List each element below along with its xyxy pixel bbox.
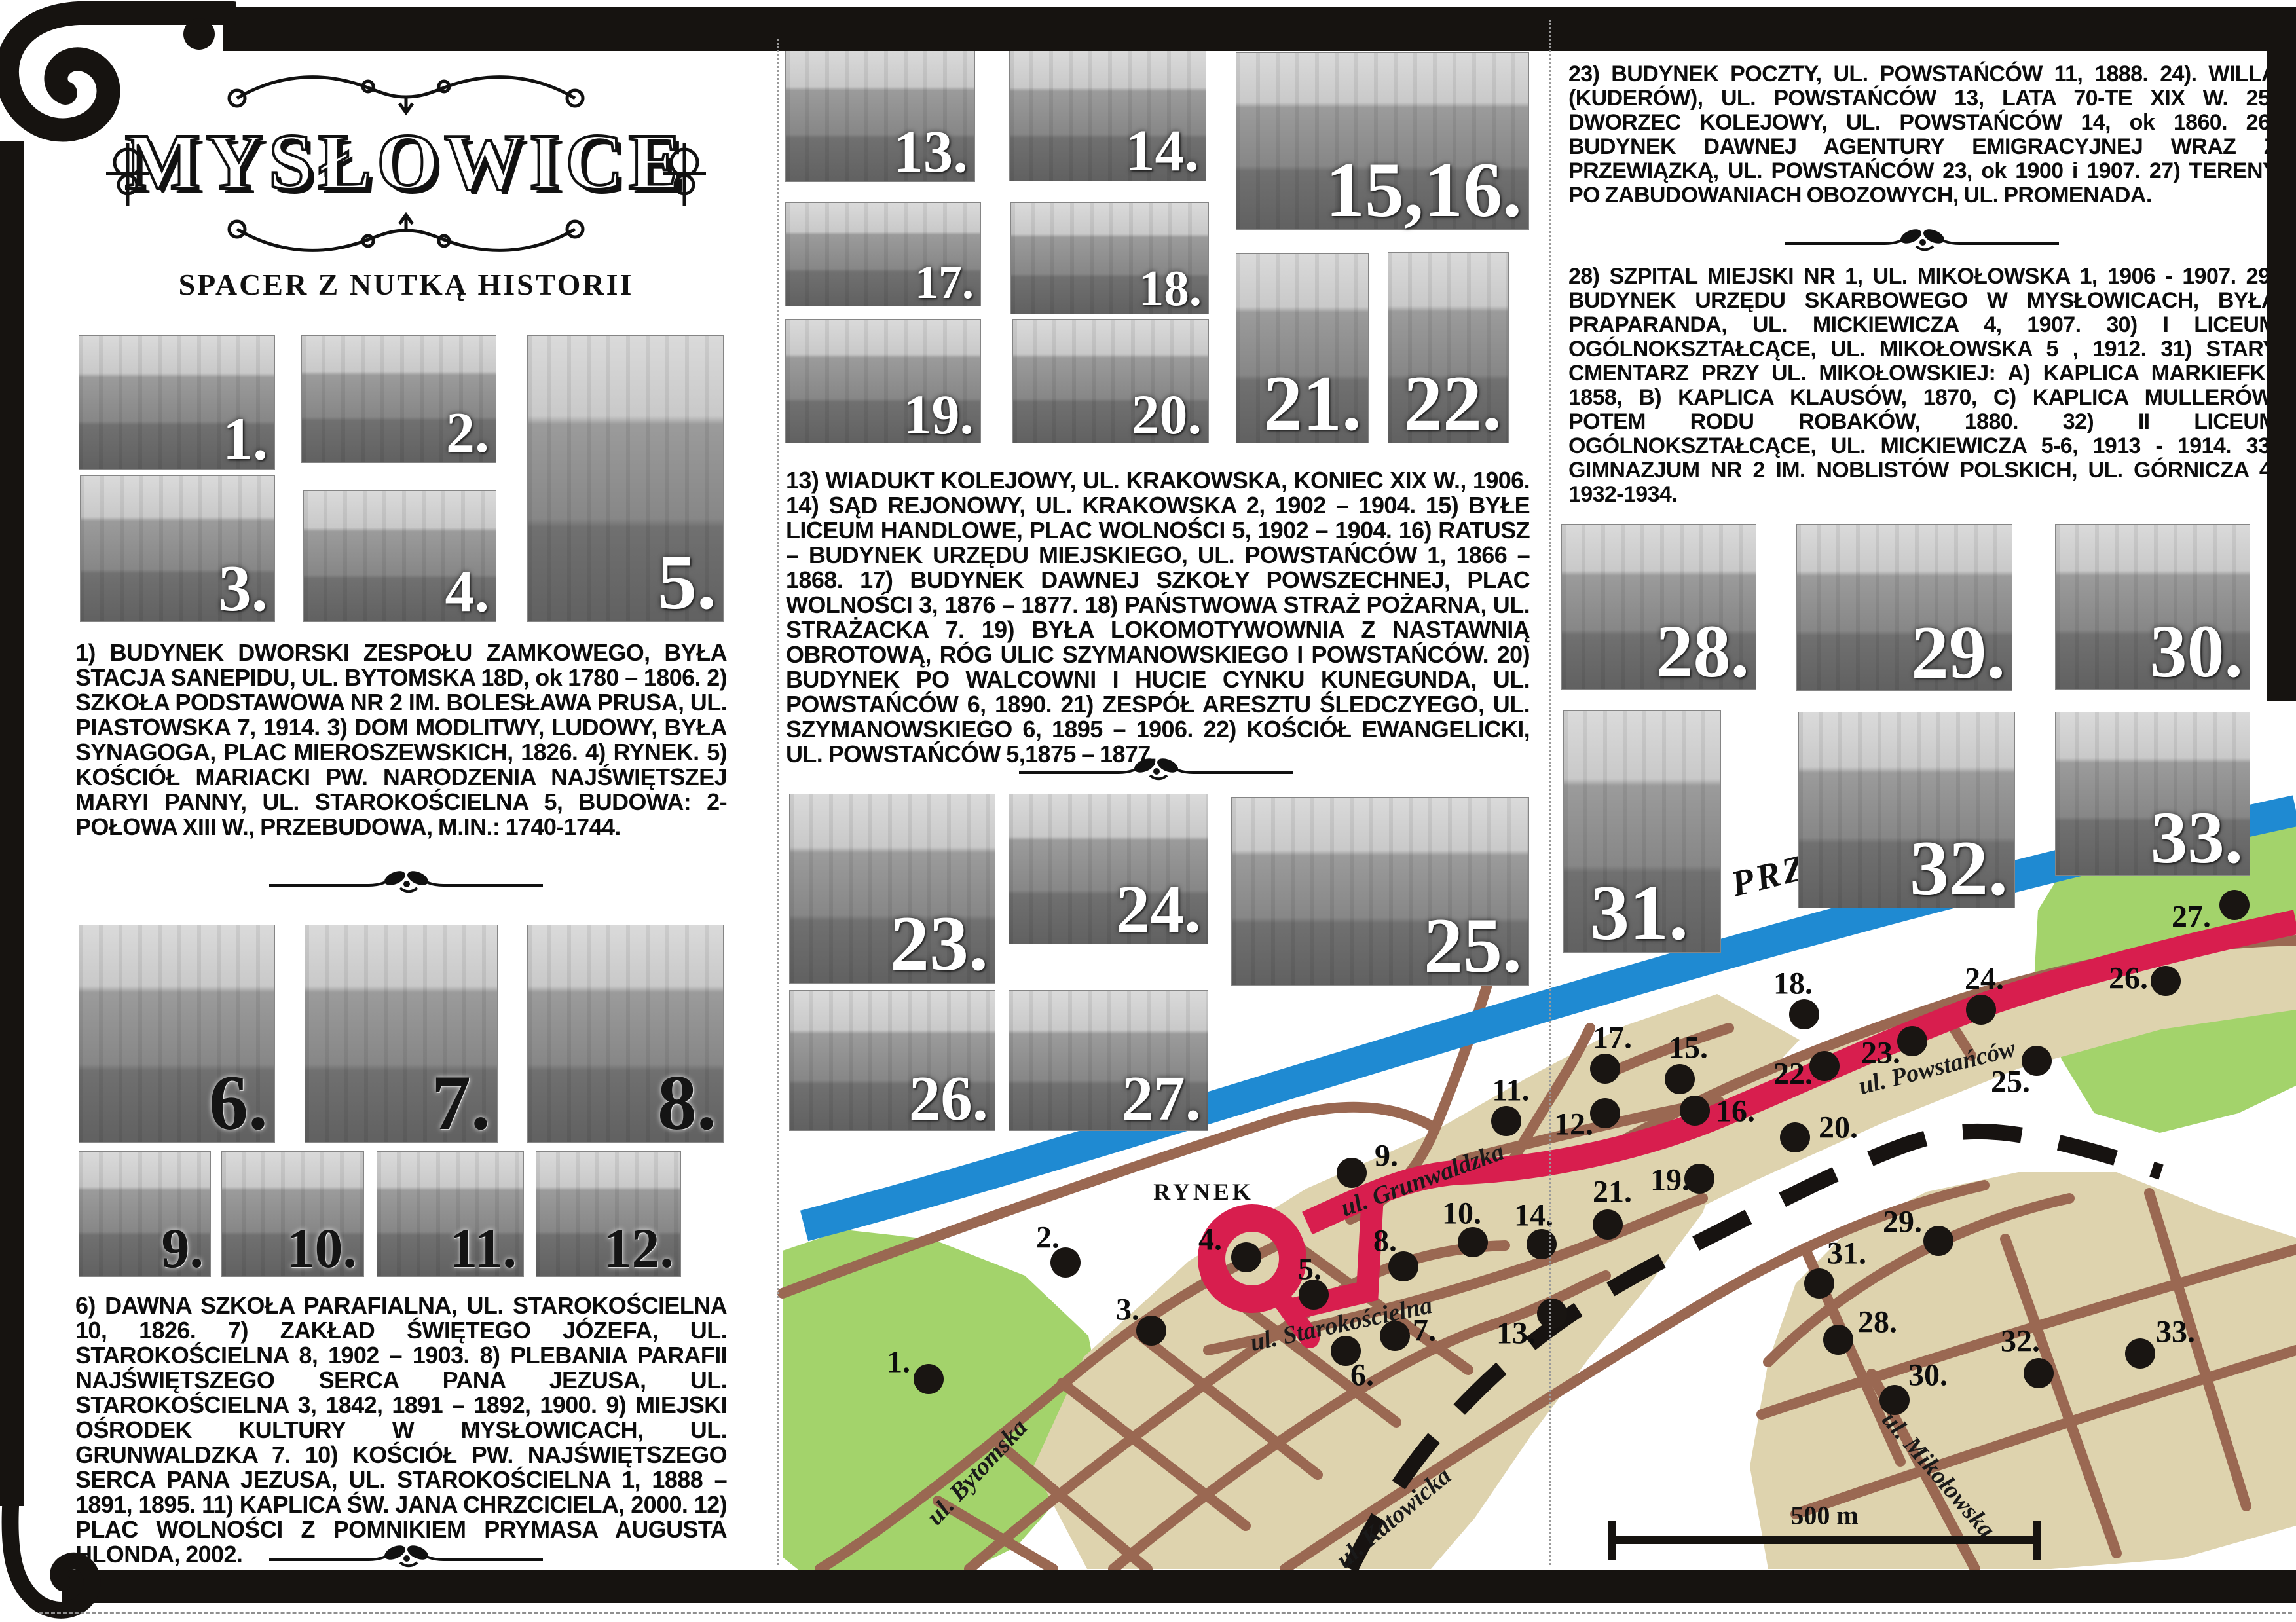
- photo-number: 14.: [1126, 122, 1200, 181]
- photo-number: 13.: [893, 122, 968, 181]
- photo-number: 26.: [909, 1067, 988, 1130]
- map-point-dot-29: [1923, 1226, 1953, 1256]
- map-point-label-16: 16.: [1716, 1094, 1755, 1130]
- photo-number: 11.: [449, 1220, 517, 1276]
- photo-number: 8.: [657, 1063, 716, 1142]
- photo-32_: 32.: [1798, 712, 2015, 908]
- map-point-label-7: 7.: [1413, 1313, 1436, 1349]
- title-ornament-top: [223, 60, 589, 117]
- photo-8_: 8.: [527, 925, 724, 1143]
- map-point-dot-17: [1590, 1054, 1620, 1084]
- map-point-dot-27: [2219, 890, 2250, 920]
- divider-left-1: [265, 866, 547, 896]
- photo-25_: 25.: [1231, 797, 1529, 986]
- map-point-label-21: 21.: [1593, 1174, 1632, 1210]
- photo-28_: 28.: [1561, 524, 1756, 690]
- map-point-dot-30: [1879, 1385, 1910, 1415]
- frame-top-bar: [223, 7, 2296, 51]
- map-point-dot-33: [2125, 1338, 2155, 1369]
- photo-number: 28.: [1656, 614, 1750, 689]
- map-point-label-26: 26.: [2109, 961, 2148, 997]
- map-point-dot-1: [914, 1364, 944, 1394]
- photo-22_: 22.: [1388, 252, 1509, 443]
- photo-29_: 29.: [1796, 524, 2012, 691]
- divider-right: [1781, 224, 2063, 254]
- map-point-dot-28: [1823, 1325, 1853, 1355]
- map-point-dot-14: [1527, 1229, 1557, 1259]
- map-point-label-30: 30.: [1908, 1357, 1948, 1393]
- map-point-dot-11: [1491, 1106, 1521, 1136]
- map-point-label-27: 27.: [2172, 899, 2211, 935]
- corner-scroll-bottom-left: [0, 1500, 111, 1622]
- map-point-label-25: 25.: [1991, 1064, 2030, 1100]
- map-point-label-12: 12.: [1554, 1107, 1593, 1143]
- photo-19_: 19.: [785, 319, 981, 443]
- photo-23_: 23.: [789, 794, 995, 984]
- photo-31_: 31.: [1563, 710, 1721, 953]
- photo-number: 30.: [2150, 614, 2244, 689]
- photo-15_16_: 15,16.: [1236, 52, 1529, 230]
- map-point-label-1: 1.: [887, 1344, 910, 1380]
- park-left: [783, 1230, 1102, 1590]
- map-point-dot-32: [2024, 1358, 2054, 1388]
- title-ornament-bottom: [223, 211, 589, 267]
- photo-number: 6.: [209, 1063, 268, 1142]
- scale-label: 500 m: [1790, 1500, 1858, 1531]
- legend-13-22: 13) WIADUKT KOLEJOWY, UL. KRAKOWSKA, KON…: [786, 468, 1530, 767]
- photo-number: 10.: [287, 1220, 358, 1276]
- map-point-dot-4: [1231, 1242, 1261, 1272]
- frame-bottom-bar: [62, 1570, 2296, 1603]
- column-separator-right: [1549, 20, 1551, 1565]
- photo-2_: 2.: [301, 335, 496, 463]
- fold-line-bottom: [39, 1612, 2292, 1614]
- legend-6-12: 6) DAWNA SZKOŁA PARAFIALNA, UL. STAROKOŚ…: [75, 1293, 727, 1567]
- corner-scroll-top-left: [0, 0, 236, 157]
- photo-11_: 11.: [377, 1151, 524, 1277]
- photo-12_: 12.: [536, 1151, 681, 1277]
- map-point-dot-24: [1966, 995, 1996, 1025]
- map-point-label-24: 24.: [1965, 961, 2004, 997]
- map-point-label-10: 10.: [1442, 1196, 1481, 1232]
- legend-1-5: 1) BUDYNEK DWORSKI ZESPOŁU ZAMKOWEGO, BY…: [75, 640, 727, 839]
- photo-33_: 33.: [2055, 712, 2250, 876]
- map-point-label-2: 2.: [1036, 1220, 1060, 1256]
- photo-13_: 13.: [785, 49, 975, 182]
- photo-number: 25.: [1424, 906, 1522, 985]
- photo-24_: 24.: [1009, 794, 1208, 944]
- map-point-label-29: 29.: [1883, 1204, 1922, 1240]
- photo-number: 18.: [1139, 263, 1202, 314]
- map-point-label-31: 31.: [1827, 1236, 1866, 1272]
- map-point-label-19: 19.: [1650, 1162, 1690, 1198]
- map-point-label-13: 13.: [1496, 1316, 1536, 1352]
- map-point-label-14: 14.: [1514, 1198, 1553, 1234]
- brochure-sheet: RYNEK PRZEMSZA ul. Bytomska ul. Katowick…: [0, 0, 2296, 1622]
- scale-bar-tick-right: [2033, 1521, 2041, 1560]
- photo-9_: 9.: [79, 1151, 211, 1277]
- photo-18_: 18.: [1010, 202, 1209, 314]
- photo-1_: 1.: [79, 335, 275, 470]
- photo-7_: 7.: [305, 925, 498, 1143]
- photo-21_: 21.: [1236, 253, 1369, 443]
- scale-bar-tick-left: [1608, 1521, 1616, 1560]
- photo-number: 33.: [2151, 801, 2243, 875]
- photo-number: 31.: [1590, 874, 1688, 952]
- map-point-dot-7: [1380, 1321, 1410, 1351]
- photo-number: 21.: [1263, 364, 1361, 443]
- rynek-label: RYNEK: [1153, 1178, 1254, 1206]
- photo-4_: 4.: [303, 490, 496, 622]
- photo-27_: 27.: [1009, 990, 1208, 1131]
- photo-number: 29.: [1911, 615, 2005, 690]
- map-point-label-28: 28.: [1858, 1304, 1897, 1340]
- photo-number: 9.: [162, 1220, 204, 1276]
- legend-28-33: 28) SZPITAL MIEJSKI NR 1, UL. MIKOŁOWSKA…: [1568, 265, 2277, 507]
- page-subtitle: SPACER Z NUTKĄ HISTORII: [39, 267, 773, 302]
- photo-number: 5.: [657, 543, 716, 621]
- photo-20_: 20.: [1012, 319, 1209, 443]
- photo-17_: 17.: [785, 202, 981, 306]
- frame-left-bar: [0, 141, 24, 1506]
- map-point-label-6: 6.: [1350, 1357, 1374, 1393]
- map-point-dot-26: [2151, 966, 2181, 996]
- map-point-dot-22: [1809, 1051, 1840, 1081]
- map-point-label-23: 23.: [1861, 1035, 1900, 1071]
- photo-number: 22.: [1403, 364, 1502, 443]
- map-point-label-33: 33.: [2156, 1314, 2195, 1350]
- photo-number: 27.: [1122, 1067, 1201, 1130]
- map-point-label-15: 15.: [1669, 1030, 1708, 1066]
- map-point-label-20: 20.: [1819, 1110, 1858, 1146]
- map-point-label-3: 3.: [1116, 1292, 1139, 1328]
- photo-10_: 10.: [221, 1151, 364, 1277]
- photo-30_: 30.: [2055, 524, 2250, 690]
- map-point-label-22: 22.: [1773, 1056, 1813, 1092]
- frame-right-bar: [2267, 7, 2296, 701]
- photo-number: 12.: [604, 1220, 675, 1276]
- photo-number: 15,16.: [1325, 151, 1522, 229]
- scale-bar: [1608, 1536, 2041, 1544]
- map-point-label-17: 17.: [1593, 1020, 1632, 1056]
- divider-left-2: [265, 1540, 547, 1570]
- map-point-dot-13: [1537, 1299, 1567, 1329]
- photo-number: 2.: [446, 405, 489, 462]
- photo-6_: 6.: [79, 925, 275, 1143]
- map-point-dot-20: [1780, 1122, 1810, 1152]
- photo-number: 32.: [1910, 829, 2008, 908]
- map-point-dot-12: [1590, 1098, 1620, 1128]
- legend-23-27: 23) BUDYNEK POCZTY, UL. POWSTAŃCÓW 11, 1…: [1568, 62, 2277, 208]
- map-point-label-11: 11.: [1492, 1073, 1529, 1109]
- photo-number: 24.: [1116, 876, 1201, 944]
- map-point-dot-23: [1897, 1026, 1927, 1056]
- photo-number: 20.: [1132, 386, 1202, 443]
- photo-number: 3.: [218, 555, 268, 621]
- photo-number: 7.: [432, 1063, 491, 1142]
- photo-3_: 3.: [80, 475, 275, 622]
- map-point-label-4: 4.: [1198, 1222, 1222, 1258]
- photo-14_: 14.: [1009, 50, 1206, 181]
- map-point-dot-31: [1804, 1268, 1834, 1299]
- title-side-ornament-right: [655, 138, 714, 210]
- map-point-label-5: 5.: [1298, 1251, 1322, 1287]
- map-point-label-9: 9.: [1375, 1138, 1398, 1174]
- map-point-dot-21: [1593, 1209, 1623, 1240]
- photo-26_: 26.: [789, 990, 995, 1131]
- photo-number: 4.: [445, 562, 490, 621]
- map-point-dot-18: [1789, 999, 1819, 1029]
- map-point-dot-10: [1458, 1227, 1488, 1257]
- map-point-label-8: 8.: [1373, 1223, 1397, 1259]
- photo-5_: 5.: [527, 335, 724, 622]
- column-separator-left: [777, 39, 779, 1565]
- divider-middle: [1015, 753, 1297, 783]
- map-point-label-32: 32.: [2001, 1323, 2040, 1359]
- photo-number: 1.: [223, 409, 268, 469]
- map-point-dot-15: [1665, 1064, 1695, 1094]
- map-point-label-18: 18.: [1773, 966, 1813, 1002]
- map-point-dot-3: [1136, 1316, 1166, 1346]
- photo-number: 19.: [904, 386, 974, 443]
- map-point-dot-16: [1680, 1096, 1710, 1126]
- map-point-dot-9: [1337, 1158, 1367, 1188]
- photo-number: 23.: [890, 904, 988, 983]
- photo-number: 17.: [915, 259, 974, 306]
